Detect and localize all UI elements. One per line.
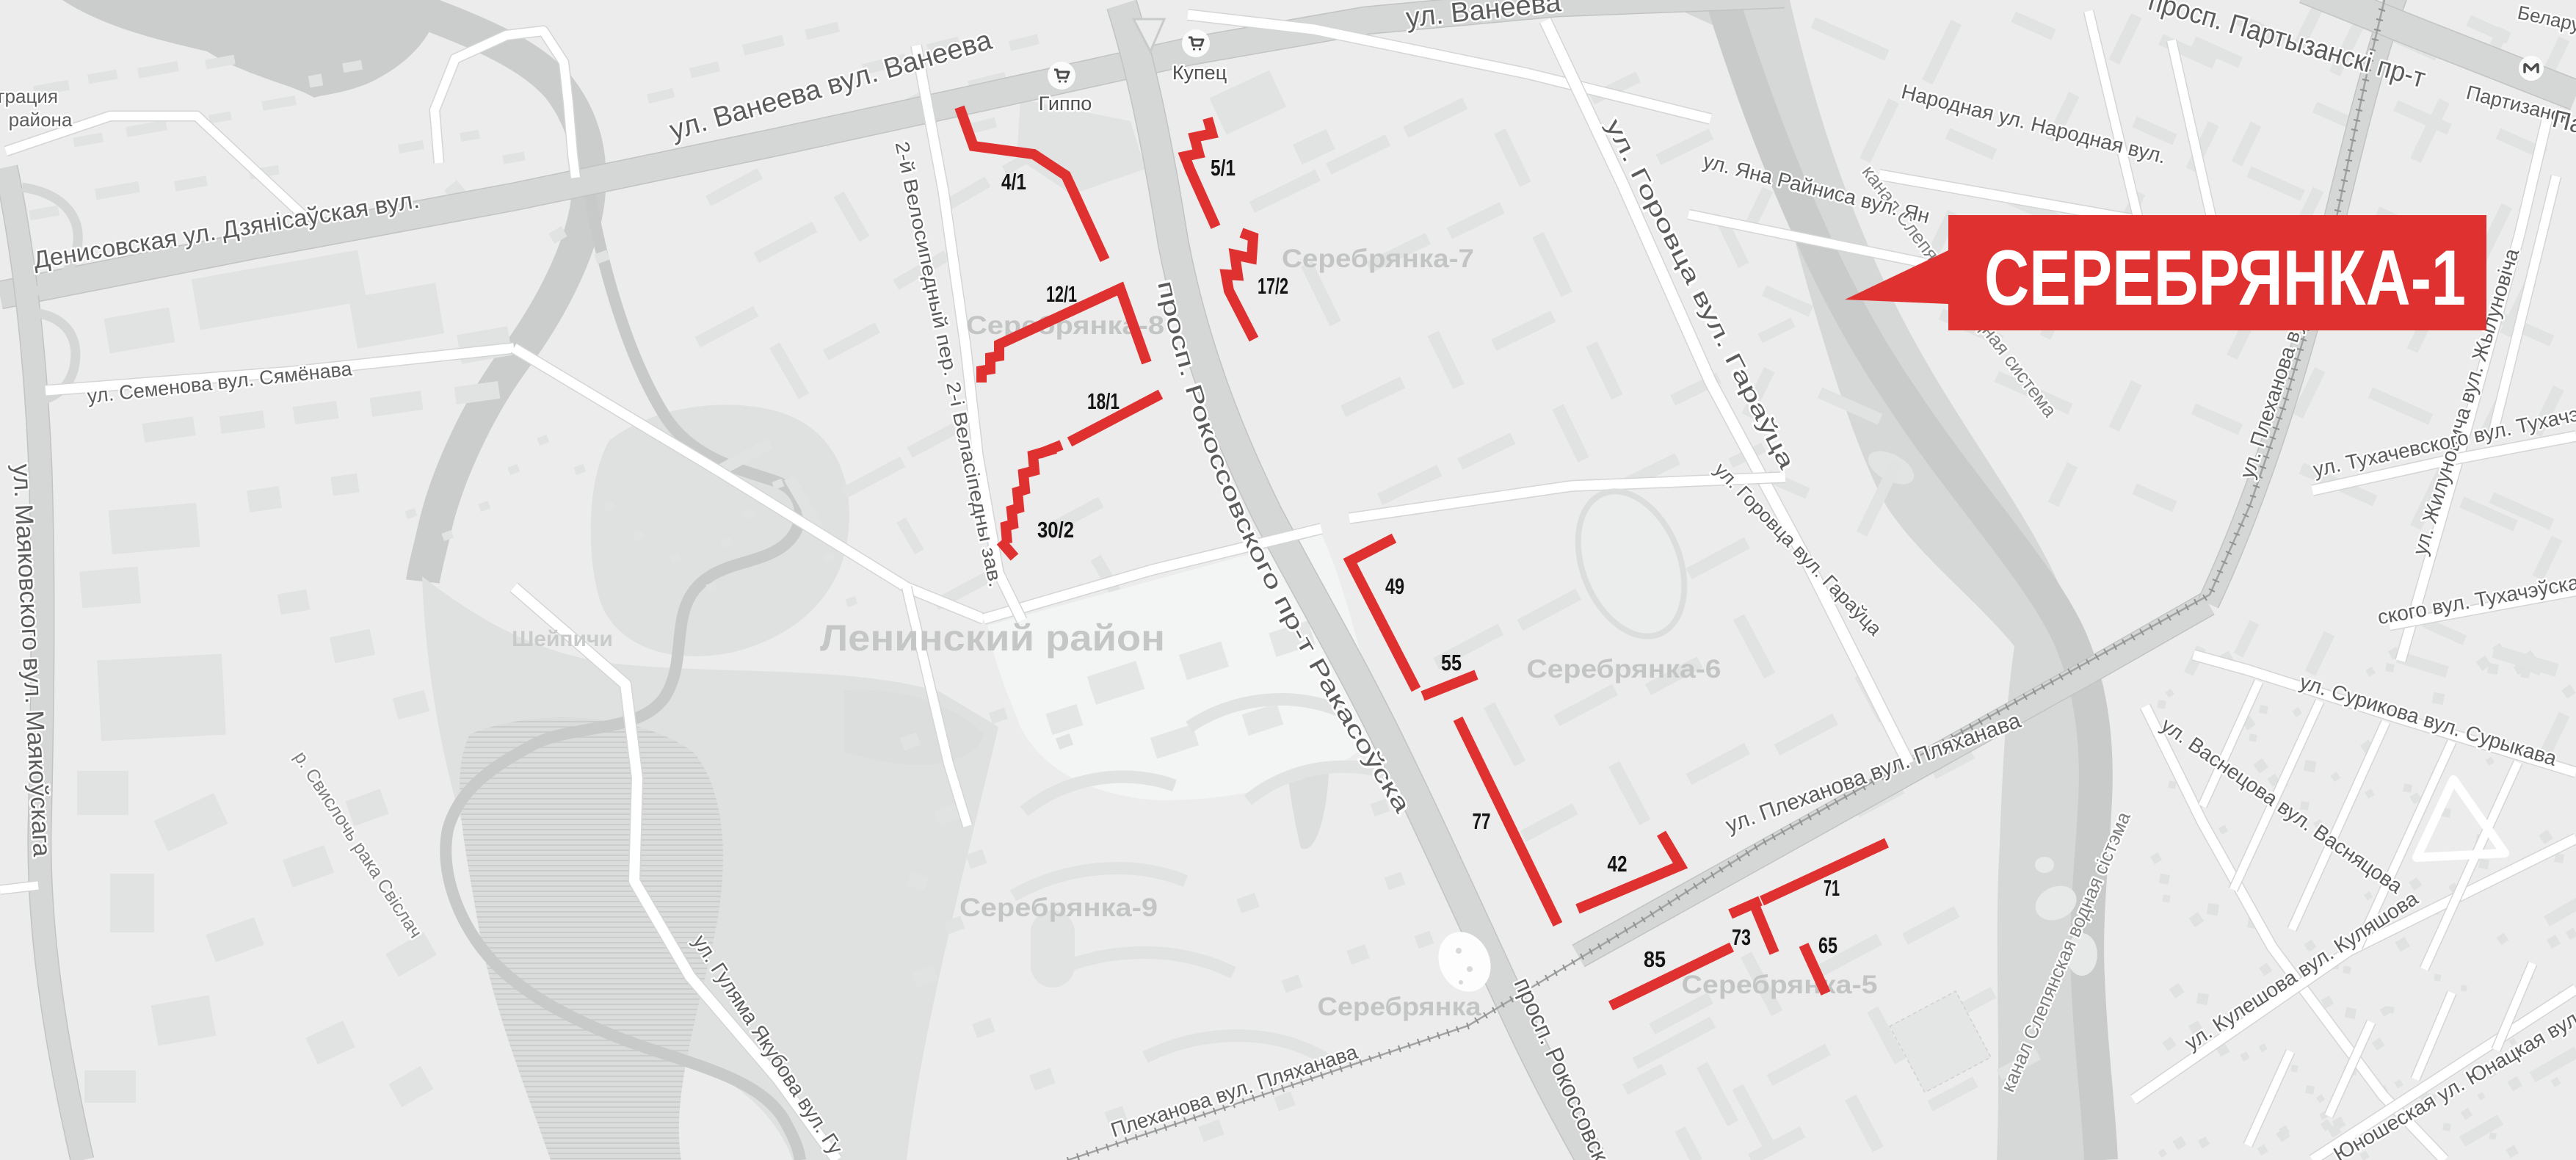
svg-text:Серебрянка: Серебрянка <box>1318 993 1482 1021</box>
svg-text:49: 49 <box>1385 573 1404 599</box>
svg-text:77: 77 <box>1473 808 1491 834</box>
svg-text:Ленинский район: Ленинский район <box>820 617 1165 659</box>
svg-text:Гиппо: Гиппо <box>1039 93 1092 115</box>
svg-text:Серебрянка-7: Серебрянка-7 <box>1282 244 1474 273</box>
svg-text:Серебрянка-5: Серебрянка-5 <box>1682 971 1878 999</box>
svg-text:Шейпичи: Шейпичи <box>512 627 613 651</box>
svg-text:55: 55 <box>1441 650 1462 675</box>
svg-text:грация: грация <box>0 85 58 107</box>
svg-text:85: 85 <box>1644 946 1666 972</box>
svg-text:42: 42 <box>1608 851 1628 877</box>
svg-text:12/1: 12/1 <box>1046 281 1077 307</box>
svg-text:Серебрянка-9: Серебрянка-9 <box>959 893 1158 922</box>
svg-text:18/1: 18/1 <box>1087 388 1120 414</box>
svg-text:73: 73 <box>1732 924 1751 950</box>
svg-text:17/2: 17/2 <box>1258 273 1288 299</box>
svg-text:района: района <box>9 109 73 131</box>
svg-text:71: 71 <box>1824 875 1840 901</box>
svg-text:4/1: 4/1 <box>1001 169 1026 195</box>
svg-text:30/2: 30/2 <box>1037 517 1074 543</box>
svg-text:5/1: 5/1 <box>1211 155 1236 181</box>
svg-text:Купец: Купец <box>1172 62 1227 84</box>
svg-text:Серебрянка-6: Серебрянка-6 <box>1527 655 1721 684</box>
svg-text:СЕРЕБРЯНКА-1: СЕРЕБРЯНКА-1 <box>1984 233 2466 322</box>
svg-text:65: 65 <box>1818 932 1837 958</box>
